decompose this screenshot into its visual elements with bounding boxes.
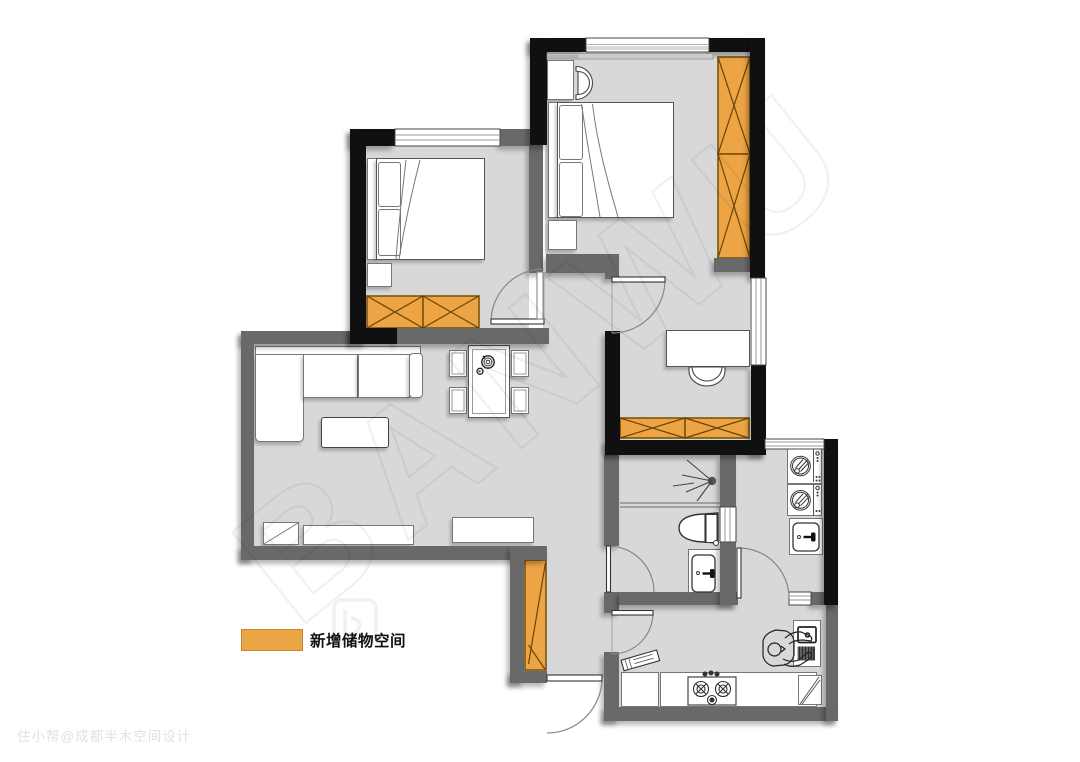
- svg-text:住小帮@成都半木空间设计: 住小帮@成都半木空间设计: [17, 729, 191, 744]
- svg-text:BANWU: BANWU: [201, 51, 889, 659]
